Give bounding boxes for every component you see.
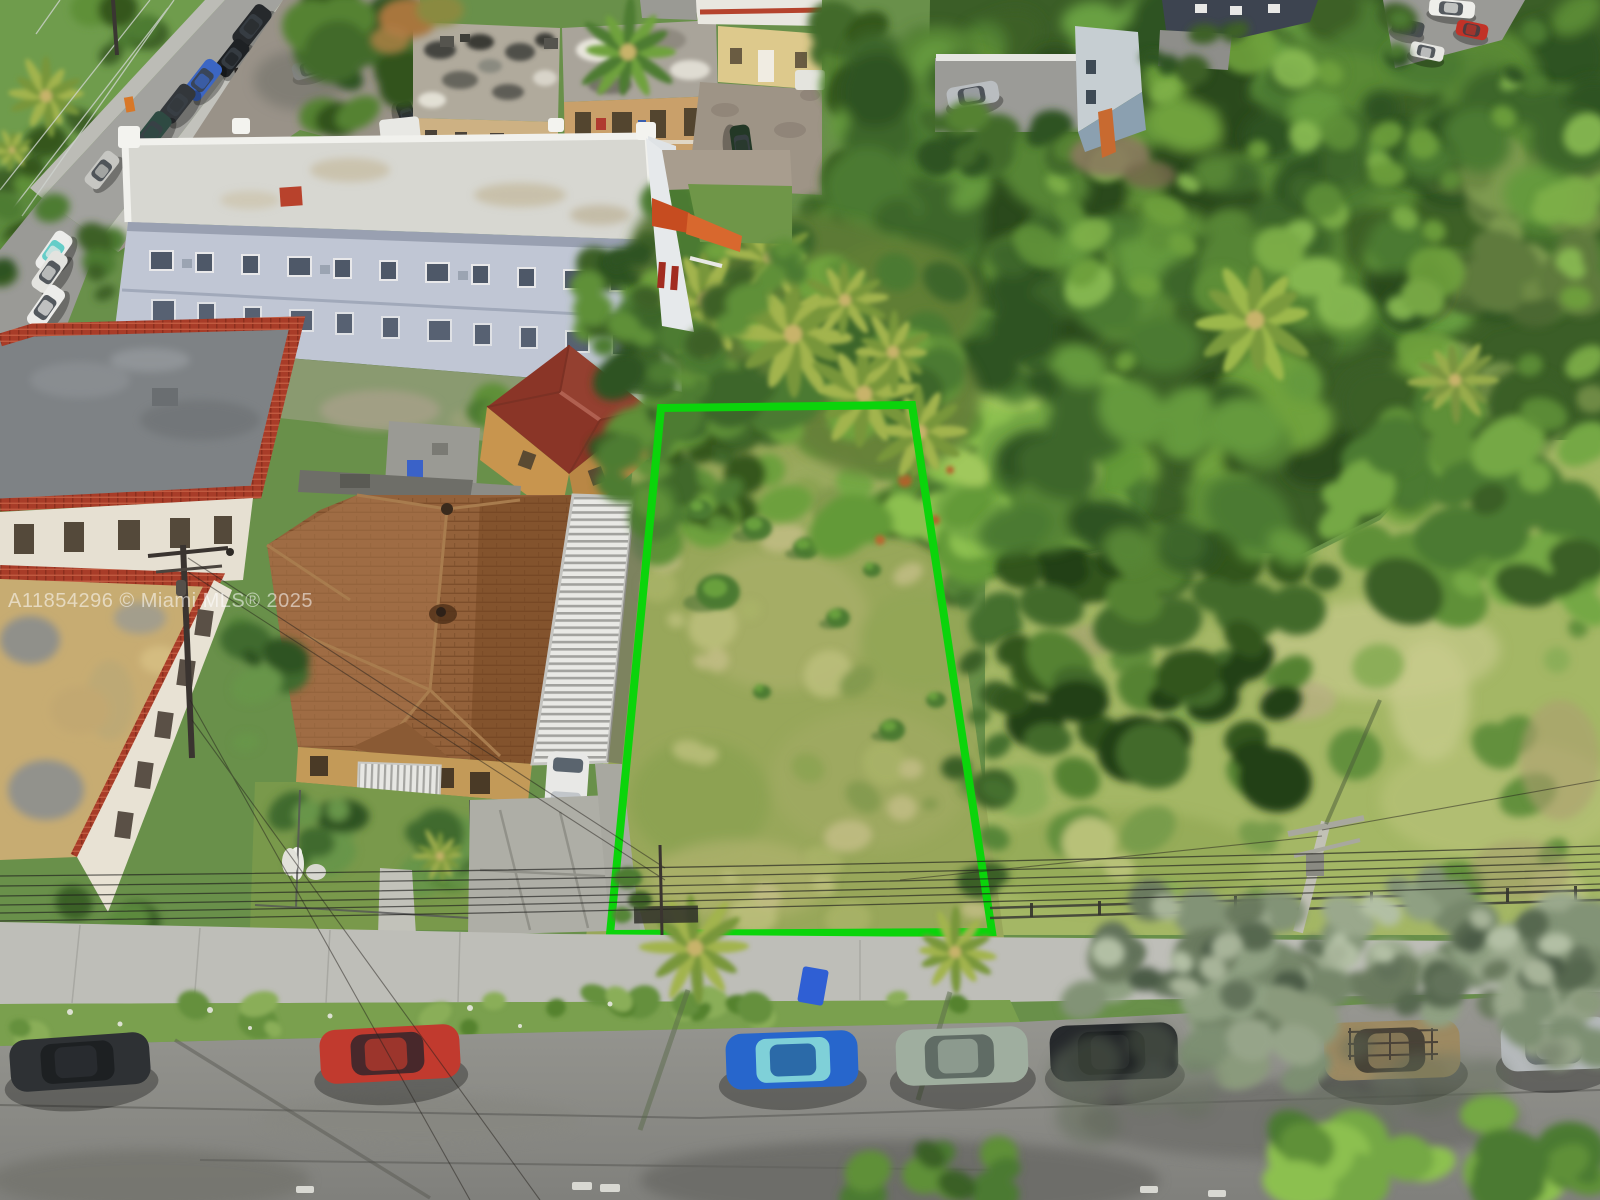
svg-text:A11854296 © Miami MLS® 2025: A11854296 © Miami MLS® 2025 bbox=[8, 590, 313, 612]
